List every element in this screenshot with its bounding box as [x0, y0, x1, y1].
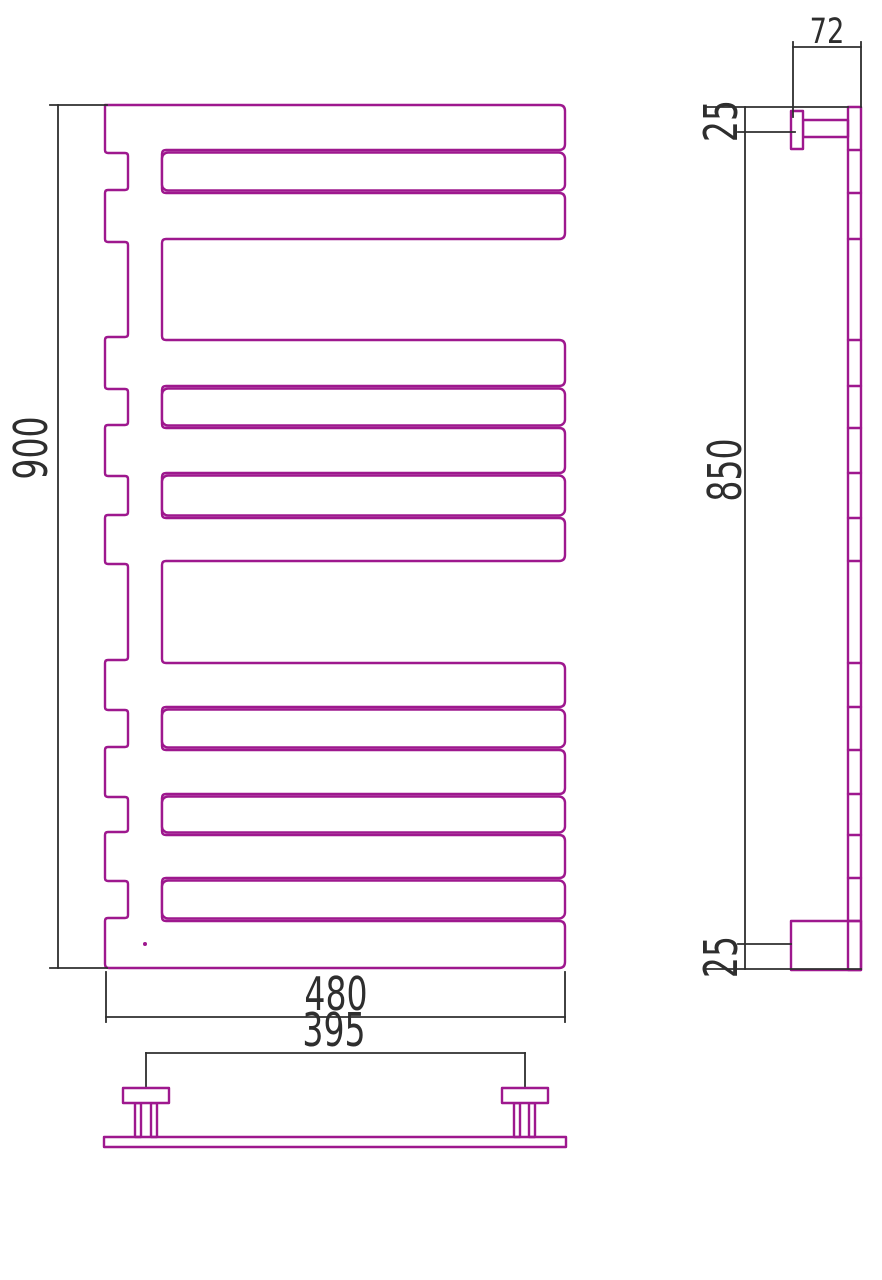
drain-point-dot — [143, 942, 147, 946]
bracket-leg — [135, 1103, 141, 1137]
dim-label-side-top-offset: 25 — [696, 100, 749, 142]
dim-label-side-height: 850 — [700, 438, 753, 501]
bottom-bracket-wall-plate — [791, 921, 861, 970]
bracket-leg — [514, 1103, 520, 1137]
radiator-cross-bar — [162, 797, 565, 833]
radiator-cross-bar — [162, 389, 565, 426]
dim-label-side-width: 72 — [810, 12, 845, 52]
drawing-page: 900 480 72 25 850 25 395 — [0, 0, 882, 1280]
radiator-cross-bar — [162, 710, 565, 748]
bracket-leg — [529, 1103, 535, 1137]
radiator-cross-bar — [162, 881, 565, 919]
wall-base-plate — [104, 1137, 566, 1147]
radiator-cross-bar — [162, 476, 565, 516]
dim-label-side-bottom-offset: 25 — [696, 936, 749, 978]
dim-label-bottom-span: 395 — [302, 1005, 365, 1058]
technical-drawing-canvas: 900 480 72 25 850 25 395 — [0, 0, 882, 1280]
bracket-foot-plate — [502, 1088, 548, 1103]
radiator-cross-bar — [162, 153, 565, 191]
top-bracket-arm — [803, 120, 848, 137]
dim-label-front-height: 900 — [6, 416, 59, 479]
radiator-serpentine-outline — [105, 105, 565, 968]
side-view — [791, 107, 861, 970]
side-rail-profile — [848, 107, 861, 970]
bracket-foot-plate — [123, 1088, 169, 1103]
front-view — [105, 105, 565, 968]
bracket-leg — [151, 1103, 157, 1137]
bottom-view — [104, 1088, 566, 1147]
